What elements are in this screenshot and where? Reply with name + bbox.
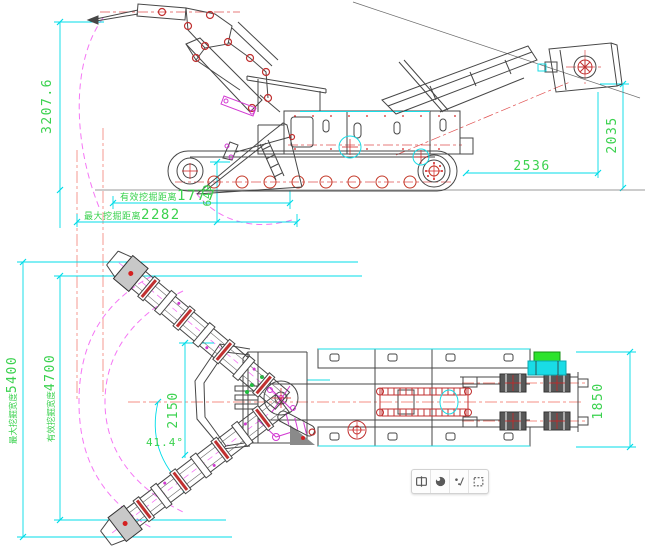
dimension-lines: [17, 19, 636, 540]
sweep-envelope-arcs: [79, 18, 295, 533]
rear-cyan-part: [528, 361, 566, 375]
dim-swing-angle: 41.4°: [146, 436, 184, 449]
dim-rear-width: 1850: [591, 382, 606, 419]
plan-outer-sweep-arc: [79, 276, 152, 528]
side-view: [88, 2, 645, 194]
dim-discharge-height: 2035: [605, 116, 620, 153]
digging-arm: [88, 4, 278, 112]
plan-cyan-edges: [307, 349, 530, 446]
machine-body: [258, 111, 473, 154]
dim-max-width: 最大挖掘宽度5400: [5, 356, 20, 444]
canopy: [247, 76, 326, 112]
plan-red-dot: [301, 436, 305, 440]
dim-effective-width: 有效挖掘宽度4700: [43, 354, 58, 442]
select-region-button[interactable]: [469, 470, 488, 493]
dashed-selection-icon: [472, 475, 485, 488]
dim-conveyor-reach: 2536: [513, 159, 550, 174]
arm-cylinder: [221, 96, 256, 116]
suspension-cable: [353, 2, 640, 98]
loading-shovel: [197, 123, 302, 194]
dim-boom-height: 3207.6: [40, 78, 55, 134]
conveyor-boom: [382, 46, 537, 114]
plan-track-strips: [318, 349, 530, 446]
resize-tool-button[interactable]: [412, 470, 431, 493]
cad-viewer-stage: 3207.6 2536 2035 有效挖掘距离1777 最大挖掘距离2282 6…: [0, 0, 650, 552]
road-wheels: [208, 166, 439, 188]
body-rivets: [295, 116, 455, 149]
side-boom-sweep-arc: [79, 18, 103, 207]
box-outline-icon: [415, 475, 428, 488]
viewer-toolbar: [411, 469, 489, 494]
dim-shovel-lip-height: 649: [201, 184, 214, 207]
dim-swing-radius: 2150: [166, 391, 181, 428]
annotate-tool-button[interactable]: [450, 470, 469, 493]
contrast-circle-icon: [434, 475, 447, 488]
contrast-tool-button[interactable]: [431, 470, 450, 493]
dots-slash-icon: [453, 475, 466, 488]
dimension-ticks: [20, 19, 633, 540]
dim-max-dig: 最大挖掘距离2282: [84, 207, 181, 223]
cad-drawing: 3207.6 2536 2035 有效挖掘距离1777 最大挖掘距离2282 6…: [0, 0, 650, 552]
rear-green-part: [534, 352, 560, 361]
arm-joints: [159, 9, 295, 140]
